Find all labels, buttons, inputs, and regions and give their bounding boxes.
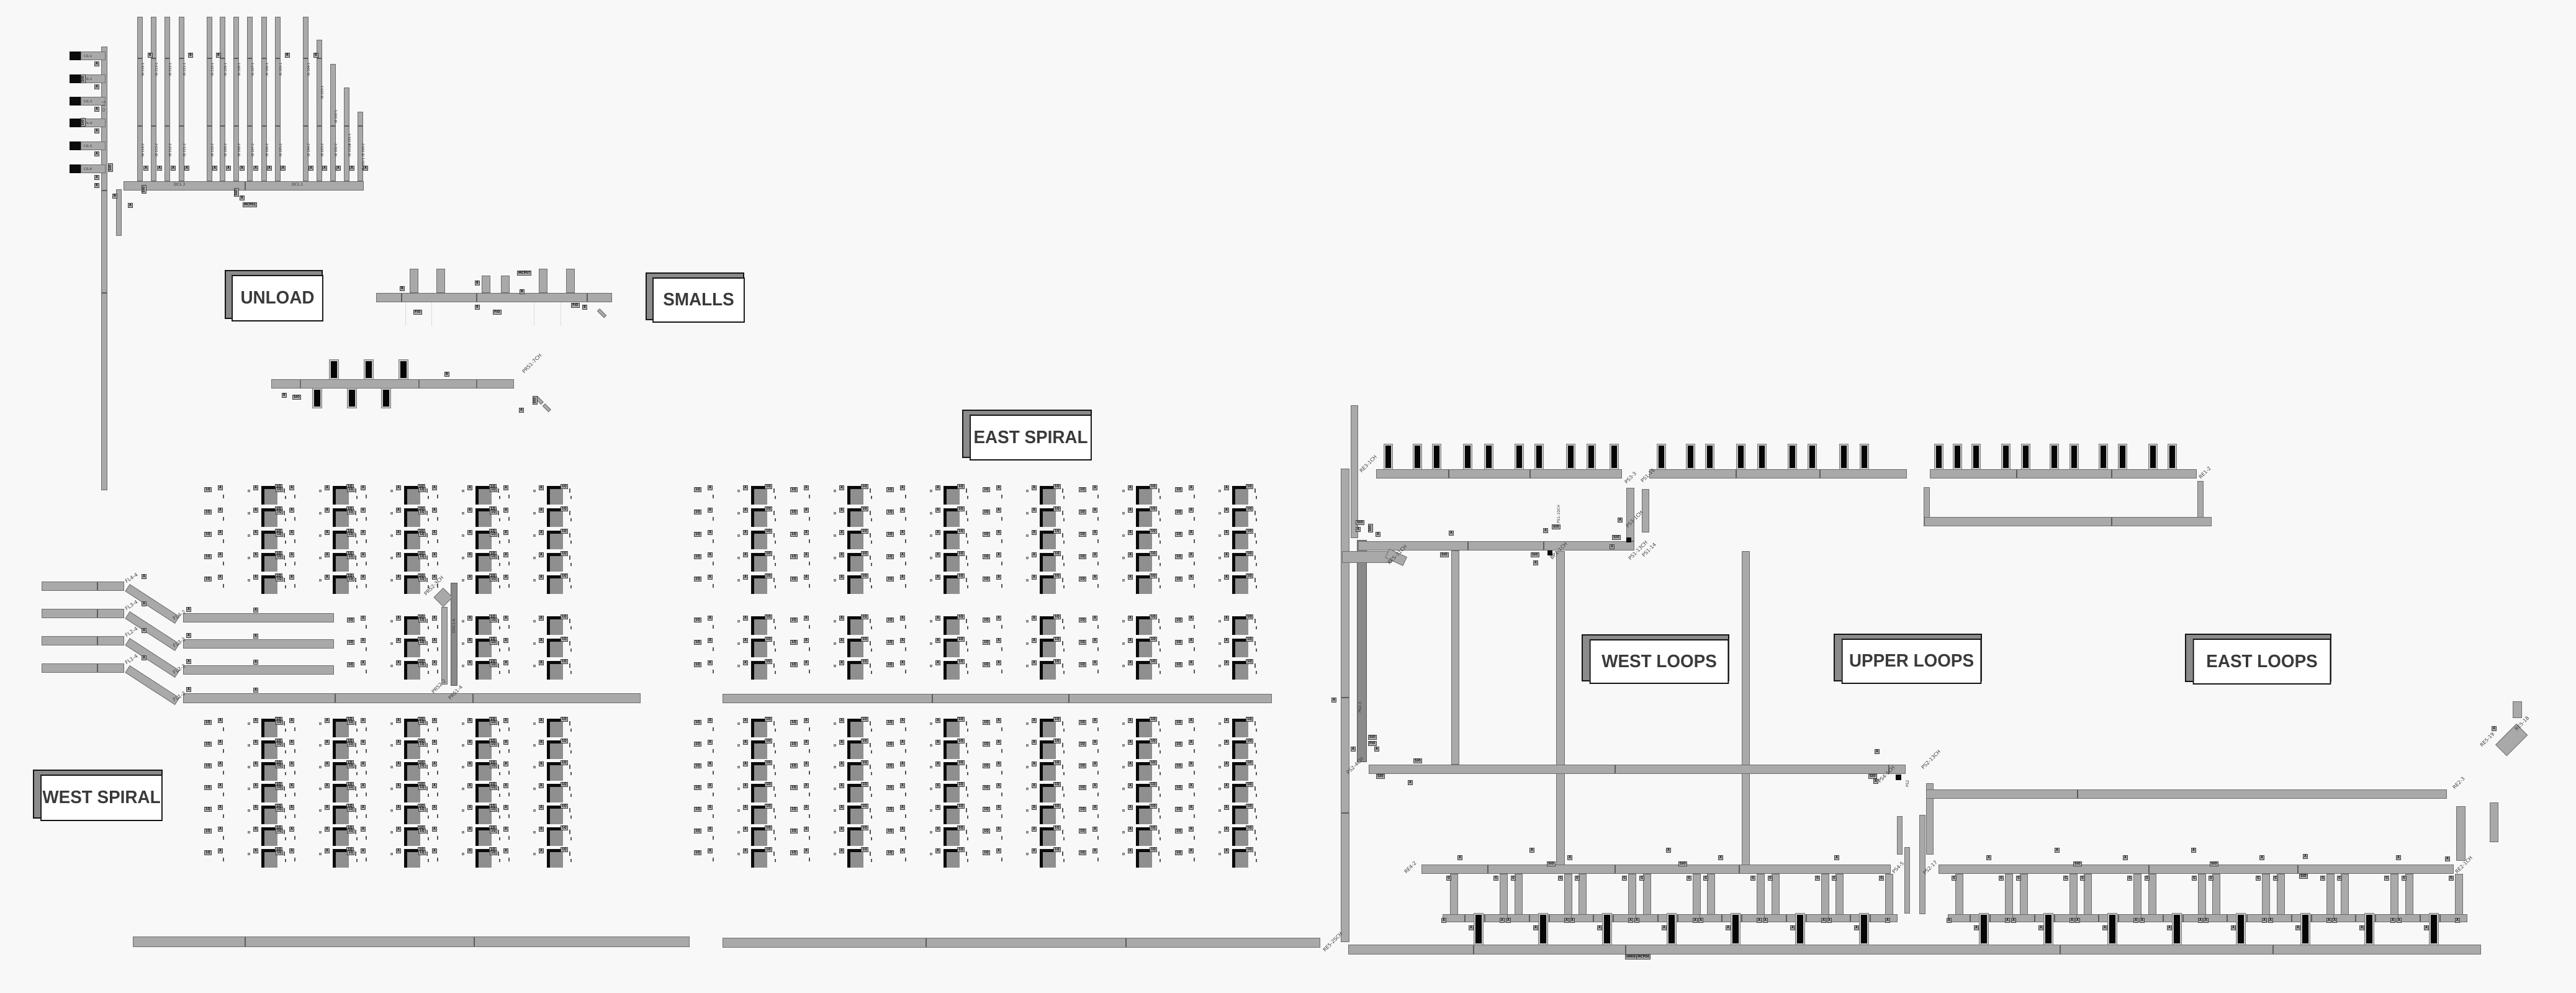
rack-tick bbox=[1160, 750, 1161, 753]
label-re5-19: RE5-19 bbox=[2479, 731, 2496, 748]
rack-dot bbox=[248, 766, 250, 768]
rack-dot bbox=[390, 788, 393, 790]
tag-sio: SIO bbox=[2299, 874, 2308, 879]
rack-tag: 1Q bbox=[561, 506, 568, 511]
rack-dot bbox=[737, 512, 740, 514]
rack-tag: A bbox=[503, 616, 508, 621]
umod-tag: A bbox=[1726, 925, 1731, 930]
rack-tick bbox=[966, 641, 967, 645]
rack-tag: A bbox=[1092, 718, 1097, 723]
rack-tag: 1Q bbox=[204, 785, 212, 790]
rack-dot bbox=[533, 512, 536, 514]
bar-joint bbox=[2111, 470, 2112, 478]
rack-tag: A bbox=[1128, 638, 1133, 643]
rack-tag: A bbox=[1189, 805, 1194, 810]
umod-tag: A bbox=[1790, 925, 1795, 930]
rack-tag: 1Q bbox=[861, 506, 868, 511]
bar-joint bbox=[1448, 470, 1449, 478]
rack-tag: A bbox=[467, 783, 472, 788]
rack-tick bbox=[285, 816, 286, 819]
rack-tick bbox=[1001, 836, 1002, 840]
bar-joint bbox=[1615, 765, 1616, 773]
rack-tick bbox=[1062, 851, 1063, 856]
dock-slot bbox=[1535, 444, 1543, 469]
rack-tag: A bbox=[325, 827, 330, 832]
rack-tag: A bbox=[804, 508, 809, 513]
rack-tag: 1Q bbox=[861, 659, 868, 664]
rack-tick bbox=[285, 772, 286, 775]
rack-dot bbox=[319, 722, 322, 725]
umod-dock bbox=[1860, 914, 1868, 945]
rack-tag: A bbox=[289, 805, 294, 810]
rack-tick bbox=[285, 496, 286, 499]
rack-tag: 1Q bbox=[561, 760, 568, 765]
rack-tag: 1Q bbox=[1246, 484, 1253, 489]
bar-joint bbox=[1487, 865, 1488, 873]
rack-tag: A bbox=[1032, 660, 1037, 665]
rack-tick bbox=[1256, 585, 1257, 588]
umod-tag: A bbox=[1885, 918, 1890, 923]
umod-tag: A bbox=[2231, 925, 2236, 930]
rack-tag: A bbox=[900, 530, 905, 535]
rack-tag: A bbox=[218, 783, 223, 788]
rack-tag: A bbox=[839, 762, 844, 766]
rack-tick bbox=[294, 495, 295, 498]
rack-tag: A bbox=[708, 530, 713, 535]
loops-bottom-bar bbox=[1348, 945, 2481, 955]
loops-drop bbox=[1556, 551, 1565, 873]
umod-tag: G bbox=[1622, 876, 1627, 881]
rack-tag: 1Q bbox=[1246, 573, 1253, 578]
rack-tick bbox=[356, 729, 358, 732]
rack-tag: 1Q bbox=[861, 760, 868, 765]
rack-tick bbox=[966, 488, 967, 493]
rack-tick bbox=[499, 585, 500, 588]
rack-tick bbox=[355, 511, 356, 515]
rack-tag: 1Q bbox=[983, 640, 990, 645]
dock-slot bbox=[1433, 444, 1441, 469]
rack-dot bbox=[930, 642, 932, 645]
tag-a: A bbox=[1875, 749, 1880, 754]
rack-tag: 1Q bbox=[490, 487, 497, 492]
ib-joint bbox=[345, 125, 349, 127]
umod-tag: A bbox=[2262, 918, 2267, 923]
tag-a: A bbox=[322, 166, 327, 171]
rack-tag: A bbox=[1032, 740, 1037, 745]
rack-tick bbox=[1063, 518, 1065, 521]
rack-tag: 1Q bbox=[1246, 847, 1253, 852]
rack-tag: A bbox=[708, 783, 713, 788]
rack-tick bbox=[870, 765, 871, 769]
rack-tag: A bbox=[396, 762, 401, 766]
bar-joint bbox=[925, 938, 927, 947]
rack-tag: A bbox=[1032, 783, 1037, 788]
rack-tag: A bbox=[503, 575, 508, 580]
rack-tick bbox=[1194, 539, 1195, 543]
rack-tick bbox=[426, 808, 428, 812]
tag-r: R bbox=[188, 53, 193, 58]
rack-tag: 1Q bbox=[694, 742, 701, 747]
zone-sign-label-unload: UNLOAD bbox=[232, 275, 323, 321]
rack-tag: 1Q bbox=[861, 825, 868, 830]
loops-right-vertical bbox=[2456, 806, 2466, 861]
rack-tag: 1Q bbox=[204, 510, 212, 514]
zone-sign-west-loops[interactable]: WEST LOOPS bbox=[1582, 634, 1729, 681]
rack-dot bbox=[1122, 722, 1125, 725]
rack-tag: 1Q bbox=[861, 782, 868, 787]
rack-tick bbox=[773, 851, 775, 856]
rack-tick bbox=[1001, 539, 1002, 543]
rack-dot bbox=[390, 809, 393, 812]
rack-tag: A bbox=[708, 485, 713, 490]
rack-tag: A bbox=[1128, 616, 1133, 621]
rack-tick bbox=[285, 563, 286, 566]
rack-tag: A bbox=[432, 638, 437, 643]
tag-sio: SIO bbox=[234, 188, 239, 197]
rack-tick bbox=[570, 626, 572, 629]
rack-tag: A bbox=[396, 718, 401, 723]
zone-sign-label-west-loops: WEST LOOPS bbox=[1590, 639, 1729, 684]
rack-tag: A bbox=[1032, 616, 1037, 621]
rack-dot bbox=[462, 490, 464, 492]
rack-tag: A bbox=[218, 740, 223, 745]
rack-tag: A bbox=[503, 848, 508, 853]
rack-tick bbox=[809, 562, 810, 565]
tag-a: A bbox=[1666, 848, 1671, 853]
rack-tag: 1Q bbox=[983, 785, 990, 790]
rack-tag: A bbox=[1224, 638, 1229, 643]
rack-tick bbox=[871, 671, 872, 674]
rack-dot bbox=[930, 579, 932, 582]
rack-tag: 1Q bbox=[418, 829, 426, 833]
zone-sign-smalls[interactable]: SMALLS bbox=[646, 272, 744, 320]
rack-tag: 1Q bbox=[694, 532, 701, 537]
rack-tick bbox=[1001, 814, 1002, 818]
ib-joint bbox=[331, 125, 335, 127]
rack-tick bbox=[366, 749, 367, 753]
umod-tag: A bbox=[2167, 925, 2172, 930]
rack-dot bbox=[390, 766, 393, 768]
tag-a: A bbox=[240, 166, 245, 171]
tag-a: A bbox=[1543, 528, 1548, 533]
rack-dot bbox=[834, 620, 836, 622]
umod-leg bbox=[1628, 874, 1636, 915]
tag-b: B bbox=[444, 372, 449, 377]
rack-tick bbox=[905, 670, 906, 673]
rack-dot bbox=[248, 744, 250, 747]
rack-tick bbox=[437, 749, 438, 753]
umod-tag: G bbox=[2402, 876, 2407, 881]
rack-dot bbox=[390, 744, 393, 747]
tag-sio: SIO bbox=[1547, 861, 1556, 866]
rack-tick bbox=[1097, 771, 1099, 775]
rack-tick bbox=[499, 859, 500, 862]
rack-tag: 1Q bbox=[490, 807, 497, 812]
rack-tag: 1Q bbox=[886, 510, 894, 514]
label-fl3-4: FL3-4 bbox=[124, 599, 138, 611]
rack-dot bbox=[737, 831, 740, 833]
rack-dot bbox=[1026, 722, 1029, 725]
label-ps2-13ch: PS2-13CH bbox=[1921, 749, 1942, 770]
rack-tag: A bbox=[539, 783, 544, 788]
ib-line-label: IB 103-2 bbox=[321, 143, 325, 156]
rack-tick bbox=[1158, 721, 1160, 726]
tag-r: R bbox=[475, 305, 480, 310]
rack-tag: 1Q bbox=[418, 742, 426, 747]
umod-leg bbox=[2133, 874, 2141, 915]
bar-joint bbox=[2163, 915, 2164, 922]
rack-dot bbox=[462, 831, 464, 833]
umod-tag: A bbox=[2102, 925, 2107, 930]
rack-tick bbox=[569, 851, 570, 856]
rack-tick bbox=[1256, 772, 1257, 775]
tag-a: A bbox=[2191, 848, 2196, 853]
rack-tick bbox=[1097, 495, 1099, 498]
rack-tick bbox=[1194, 562, 1195, 565]
rack-tick bbox=[809, 793, 810, 796]
rack-tag: 1Q bbox=[765, 804, 772, 809]
rack-tick bbox=[508, 584, 510, 588]
ha-bar bbox=[183, 613, 334, 622]
rack-tick bbox=[498, 663, 499, 668]
fl-feed-bar bbox=[42, 609, 124, 618]
rack-tag: A bbox=[839, 848, 844, 853]
rack-tick bbox=[967, 671, 968, 674]
rack-tick bbox=[285, 794, 286, 797]
rack-tick bbox=[1063, 750, 1065, 753]
rack-tick bbox=[1158, 619, 1160, 623]
east-divider-bar bbox=[723, 694, 1272, 703]
rack-tick bbox=[426, 578, 428, 582]
rack-tick bbox=[905, 858, 906, 861]
rack-dot bbox=[834, 788, 836, 790]
umod-leg bbox=[1821, 874, 1829, 915]
rack-tick bbox=[294, 836, 295, 840]
umod-leg bbox=[1885, 874, 1893, 915]
rack-tick bbox=[1254, 830, 1256, 834]
rack-tick bbox=[871, 585, 872, 588]
zone-sign-west-spiral[interactable]: WEST SPIRAL bbox=[33, 770, 163, 819]
dock-slot bbox=[1687, 444, 1695, 469]
smalls-conveyor-seg bbox=[477, 379, 514, 389]
rack-tick bbox=[713, 749, 714, 753]
rack-tag: A bbox=[396, 783, 401, 788]
rack-tag: A bbox=[1224, 783, 1229, 788]
zone-sign-unload[interactable]: UNLOAD bbox=[225, 270, 323, 319]
rack-tick bbox=[1194, 517, 1195, 521]
rack-tag: A bbox=[996, 552, 1001, 557]
tag-a: A bbox=[142, 655, 146, 660]
rack-tick bbox=[284, 511, 285, 515]
rack-tick bbox=[1001, 647, 1002, 651]
rack-tick bbox=[284, 830, 285, 834]
rack-tag: 1Q bbox=[1175, 577, 1182, 582]
rack-dot bbox=[1122, 744, 1125, 747]
rack-tag: 1Q bbox=[1175, 807, 1182, 812]
dock-slot bbox=[313, 389, 322, 408]
rack-tick bbox=[1256, 729, 1257, 732]
west-bottom-bar bbox=[133, 937, 690, 947]
umod-dock bbox=[2044, 914, 2053, 945]
umod-tag: G bbox=[2145, 876, 2150, 881]
rack-tick bbox=[366, 517, 367, 521]
rack-tag: A bbox=[1032, 530, 1037, 535]
rack-tag: A bbox=[804, 530, 809, 535]
rack-tick bbox=[569, 721, 570, 726]
rack-tick bbox=[285, 750, 286, 753]
rack-dot bbox=[1218, 788, 1221, 790]
rack-tag: 1Q bbox=[347, 618, 354, 622]
ib-line bbox=[261, 17, 267, 181]
rack-tag: 1Q bbox=[418, 554, 426, 559]
rack-tag: 1Q bbox=[418, 720, 426, 725]
rack-tag: 1Q bbox=[1053, 484, 1061, 489]
rack-tag: A bbox=[996, 638, 1001, 643]
rack-tick bbox=[508, 836, 510, 840]
rack-tick bbox=[1097, 858, 1099, 861]
tag-b: B bbox=[400, 286, 405, 291]
ib-line-label: IB 113-2 bbox=[155, 143, 159, 156]
zone-sign-east-spiral[interactable]: EAST SPIRAL bbox=[962, 410, 1092, 458]
umod-tag: A bbox=[1533, 925, 1538, 930]
label-ps2-3: PS2-3 bbox=[1358, 702, 1362, 712]
tag-a: A bbox=[2445, 856, 2450, 861]
rack-tick bbox=[508, 670, 510, 673]
tag-r: R bbox=[112, 194, 117, 199]
rack-tick bbox=[1256, 837, 1257, 840]
tag-sio: SIO bbox=[2210, 861, 2218, 866]
rack-tick bbox=[1256, 563, 1257, 566]
rack-tag: 1Q bbox=[790, 763, 798, 768]
rack-tick bbox=[356, 563, 358, 566]
rack-tag: 1Q bbox=[418, 763, 426, 768]
rack-tick bbox=[437, 517, 438, 521]
rack-tick bbox=[1254, 619, 1256, 623]
loops-dark-vertical bbox=[1357, 540, 1367, 762]
rack-tick bbox=[1063, 794, 1065, 797]
ib-joint bbox=[179, 58, 184, 59]
rack-tag: 1Q bbox=[418, 807, 426, 812]
tag-r: R bbox=[148, 53, 153, 58]
ib-line-label: IB 102-2 bbox=[335, 143, 338, 156]
rack-tag: A bbox=[539, 485, 544, 490]
rack-dot bbox=[319, 512, 322, 514]
ib-line bbox=[179, 17, 184, 181]
rack-dot bbox=[533, 766, 536, 768]
rack-tag: A bbox=[935, 575, 940, 580]
rack-dot bbox=[319, 534, 322, 537]
tag-sio: SIO bbox=[1376, 774, 1385, 779]
tag-sio: SIO bbox=[1368, 735, 1377, 740]
umod-dock bbox=[1979, 914, 1988, 945]
rack-tag: A bbox=[467, 660, 472, 665]
rack-tick bbox=[773, 619, 775, 623]
tag-a: A bbox=[2492, 726, 2497, 731]
tag-a: A bbox=[2055, 848, 2060, 853]
rack-dot bbox=[319, 579, 322, 582]
conveyor-stub bbox=[566, 269, 575, 293]
rack-tag: A bbox=[396, 740, 401, 745]
rack-tick bbox=[1254, 765, 1256, 769]
rack-tag: A bbox=[289, 718, 294, 723]
umod-tag: A bbox=[1628, 918, 1633, 923]
rack-tag: A bbox=[467, 805, 472, 810]
rack-tag: 1Q bbox=[1079, 829, 1086, 833]
loops-drop bbox=[1451, 550, 1459, 765]
ib-joint bbox=[304, 58, 308, 59]
rack-tick bbox=[437, 539, 438, 543]
rack-tick bbox=[871, 750, 872, 753]
rack-tag: 1Q bbox=[418, 618, 426, 622]
rack-dot bbox=[248, 809, 250, 812]
rack-tag: 1Q bbox=[1053, 506, 1061, 511]
tag-a: A bbox=[1408, 780, 1413, 785]
rack-tick bbox=[1063, 816, 1065, 819]
tag-a: A bbox=[94, 175, 99, 180]
rack-tag: 1Q bbox=[1053, 825, 1061, 830]
rack-tag: 1Q bbox=[490, 850, 497, 855]
rack-tag: A bbox=[467, 575, 472, 580]
umod-tag: A bbox=[1469, 925, 1474, 930]
rack-dot bbox=[319, 853, 322, 855]
rack-tick bbox=[499, 794, 500, 797]
rack-tag: 1Q bbox=[490, 640, 497, 645]
rack-tag: A bbox=[1032, 552, 1037, 557]
rack-tick bbox=[570, 496, 572, 499]
loops-drop bbox=[1897, 816, 1903, 855]
rack-dot bbox=[533, 490, 536, 492]
bar-joint bbox=[2182, 915, 2184, 922]
umod-tag: A bbox=[2038, 925, 2043, 930]
bar-joint bbox=[1543, 542, 1544, 550]
rack-dot bbox=[834, 512, 836, 514]
rack-dot bbox=[1218, 665, 1221, 667]
bar-joint bbox=[1625, 945, 1626, 954]
rack-tick bbox=[775, 816, 776, 819]
tag-sio: SIO bbox=[108, 163, 113, 172]
dock-slot bbox=[1706, 444, 1714, 469]
rack-tick bbox=[1158, 765, 1160, 769]
rack-tag: 1Q bbox=[1053, 637, 1061, 642]
rack-tag: A bbox=[1189, 485, 1194, 490]
rack-tick bbox=[905, 727, 906, 731]
rack-tick bbox=[871, 563, 872, 566]
zone-sign-east-loops[interactable]: EAST LOOPS bbox=[2185, 634, 2331, 682]
zone-sign-upper-loops[interactable]: UPPER LOOPS bbox=[1834, 634, 1982, 681]
rack-tick bbox=[870, 786, 871, 791]
rack-tag: A bbox=[325, 575, 330, 580]
rack-tag: 1Q bbox=[1079, 807, 1086, 812]
rack-tag: A bbox=[996, 762, 1001, 766]
rack-tag: A bbox=[1092, 552, 1097, 557]
rack-tag: 1Q bbox=[886, 807, 894, 812]
rack-dot bbox=[1218, 831, 1221, 833]
rack-tag: 1Q bbox=[694, 554, 701, 559]
loops-riser bbox=[2197, 481, 2204, 518]
rack-dot bbox=[1218, 557, 1221, 559]
rack-tag: 1Q bbox=[1079, 850, 1086, 855]
rack-dot bbox=[834, 642, 836, 645]
rack-tag: 1Q bbox=[765, 614, 772, 619]
umod-tag: G bbox=[2127, 876, 2132, 881]
rack-tag: A bbox=[539, 616, 544, 621]
rack-tag: 1Q bbox=[765, 484, 772, 489]
umod-tag: A bbox=[1974, 925, 1979, 930]
dock-slot bbox=[1485, 444, 1493, 469]
rack-tag: A bbox=[361, 660, 366, 665]
bar-joint bbox=[245, 182, 246, 190]
tag-a: A bbox=[186, 659, 191, 664]
